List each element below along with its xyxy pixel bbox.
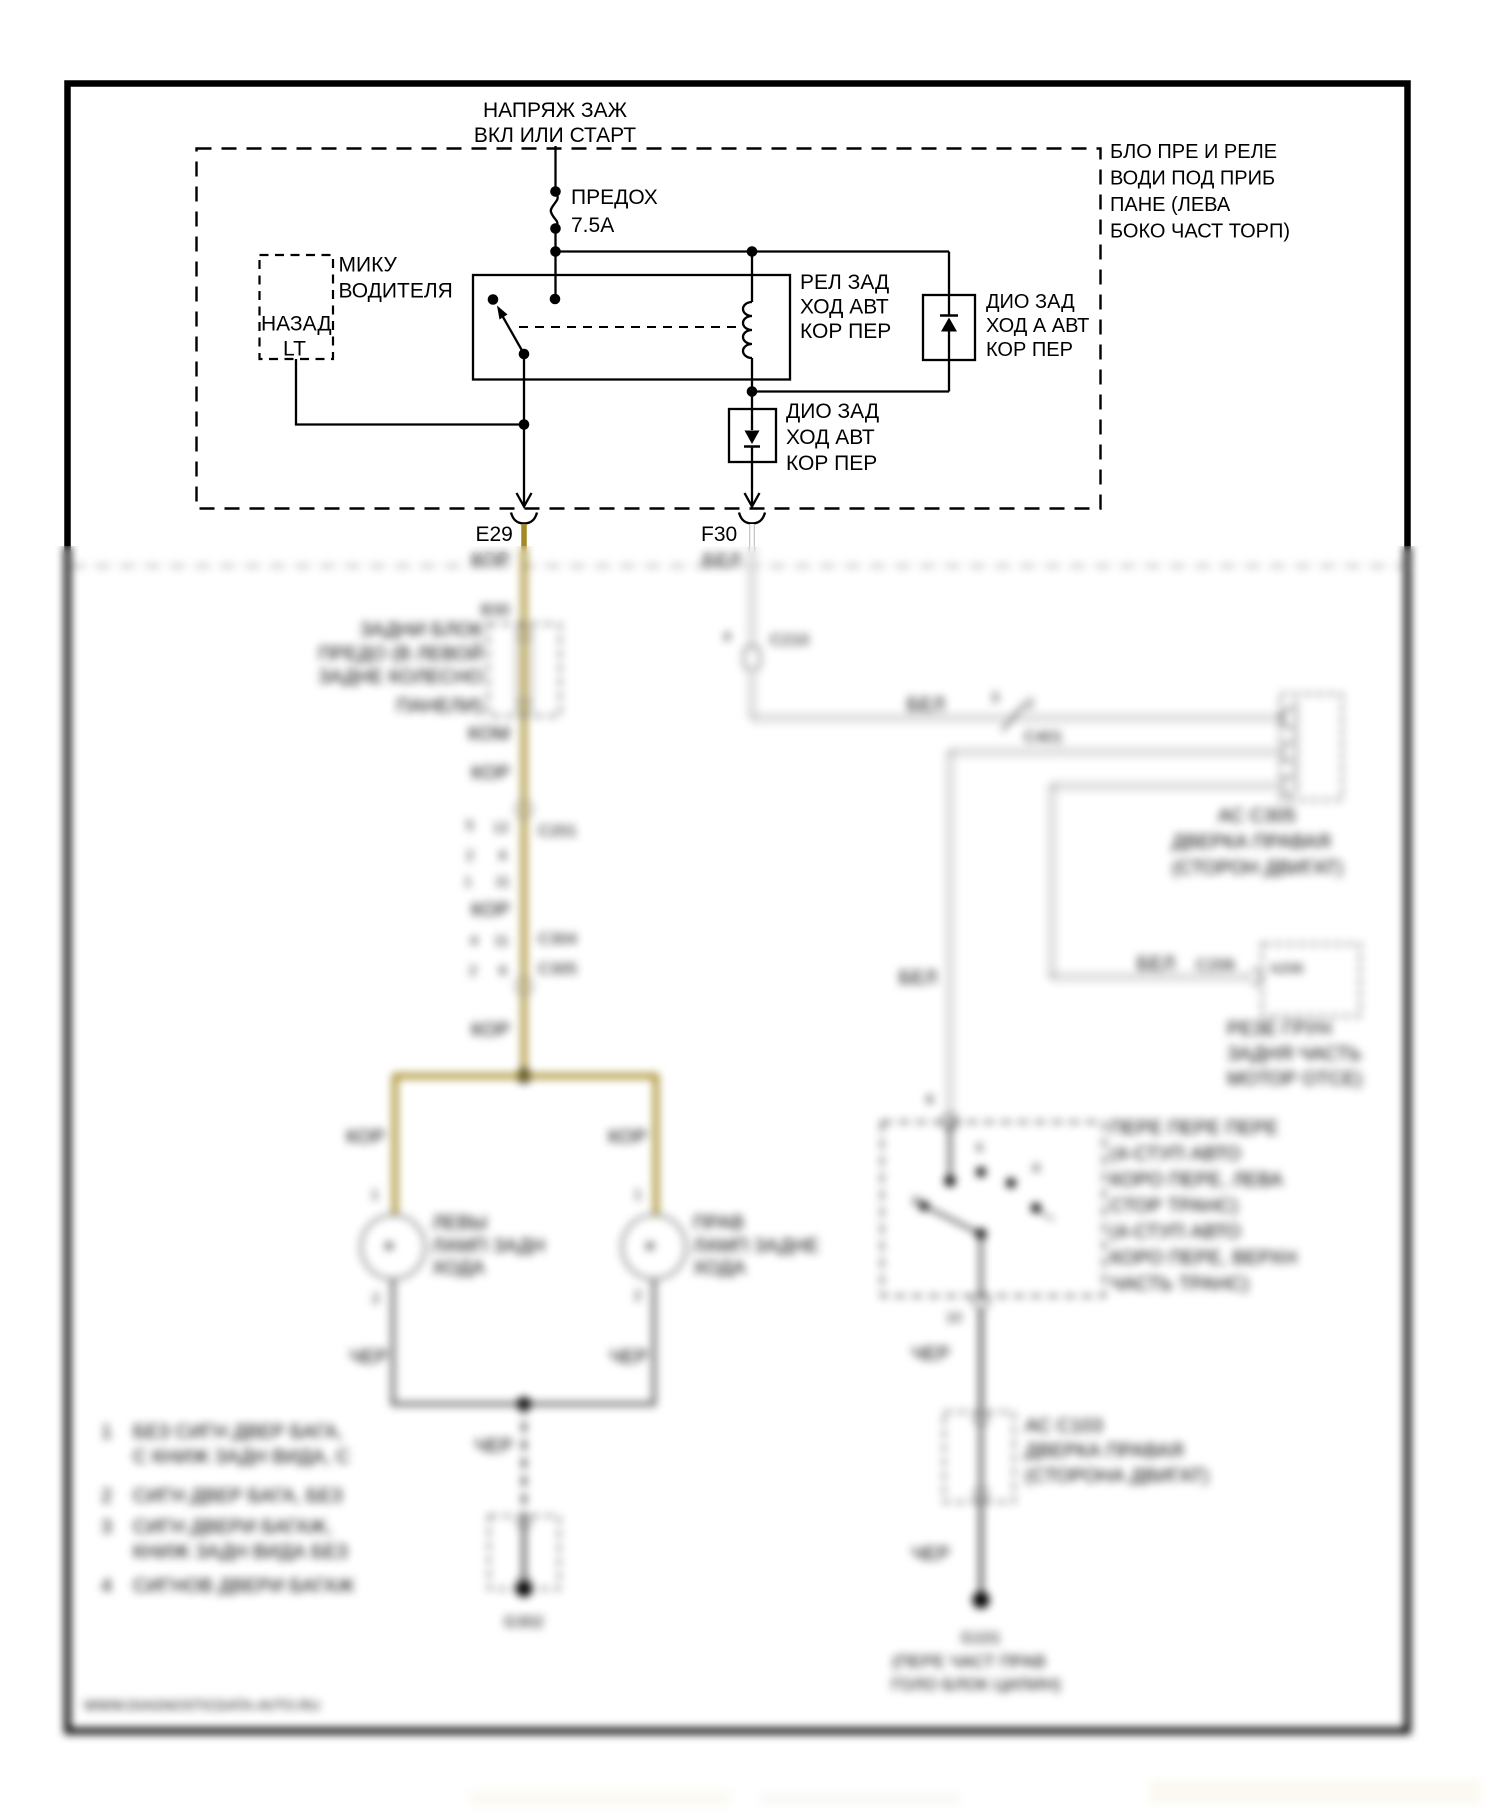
svg-text:ХОД АВТ: ХОД АВТ	[786, 426, 875, 449]
svg-text:WWW.DIAGNOSTICDATA-AVTO.RU: WWW.DIAGNOSTICDATA-AVTO.RU	[84, 1697, 320, 1713]
svg-text:(ПЕРЕ ЧАСТ ПРАВ: (ПЕРЕ ЧАСТ ПРАВ	[892, 1652, 1046, 1671]
svg-text:LT: LT	[283, 338, 306, 361]
svg-text:ПРАВ: ПРАВ	[693, 1213, 744, 1234]
svg-text:ЗАДНЕ КОЛЕСНО: ЗАДНЕ КОЛЕСНО	[318, 667, 483, 688]
svg-text:2: 2	[466, 847, 474, 863]
svg-text:ПАНЕЛИ): ПАНЕЛИ)	[396, 696, 483, 717]
svg-text:С210: С210	[770, 632, 809, 649]
svg-text:КОР: КОР	[346, 1127, 385, 1148]
svg-text:ДИО ЗАД: ДИО ЗАД	[986, 291, 1075, 313]
svg-text:КОР ПЕР: КОР ПЕР	[986, 339, 1073, 361]
svg-text:ПАНЕ (ЛЕВА: ПАНЕ (ЛЕВА	[1110, 194, 1231, 216]
svg-text:1: 1	[464, 873, 472, 889]
svg-text:6: 6	[499, 962, 507, 978]
svg-text:РЕЛ ЗАД: РЕЛ ЗАД	[800, 271, 889, 294]
svg-text:БЕЛ: БЕЛ	[1137, 954, 1175, 975]
svg-text:5: 5	[466, 817, 474, 833]
svg-text:КОР: КОР	[471, 550, 510, 571]
svg-text:БЕЛ: БЕЛ	[899, 968, 937, 989]
svg-text:БЛО ПРЕ И РЕЛЕ: БЛО ПРЕ И РЕЛЕ	[1110, 141, 1277, 163]
svg-text:С КНИЖ ЗАДН ВИДА, С: С КНИЖ ЗАДН ВИДА, С	[133, 1447, 350, 1468]
svg-text:G302: G302	[504, 1614, 544, 1631]
svg-text:11: 11	[495, 873, 510, 889]
svg-text:МИКУ: МИКУ	[339, 254, 398, 277]
svg-text:2: 2	[1026, 695, 1034, 711]
svg-text:F30: F30	[701, 523, 737, 546]
svg-text:ДВЕРКА ПРАВАЯ: ДВЕРКА ПРАВАЯ	[1025, 1441, 1184, 1462]
svg-text:6: 6	[926, 1091, 934, 1107]
svg-text:БЕЛ: БЕЛ	[907, 695, 945, 716]
svg-text:ВКЛ ИЛИ СТАРТ: ВКЛ ИЛИ СТАРТ	[474, 124, 636, 147]
svg-text:ЧЕР: ЧЕР	[911, 1344, 950, 1365]
svg-text:(4-СТУП АВТО: (4-СТУП АВТО	[1110, 1222, 1241, 1243]
svg-text:ВОДИ ПОД ПРИБ: ВОДИ ПОД ПРИБ	[1110, 168, 1275, 190]
svg-text:КНИЖ ЗАДН ВИДА БЕЗ: КНИЖ ЗАДН ВИДА БЕЗ	[133, 1542, 348, 1563]
svg-text:С201: С201	[538, 823, 577, 840]
svg-text:ЧАСТЬ ТРАНС): ЧАСТЬ ТРАНС)	[1110, 1274, 1249, 1295]
svg-text:КОР: КОР	[471, 1020, 510, 1041]
svg-text:РЕЗЕ ГРУН: РЕЗЕ ГРУН	[1227, 1019, 1332, 1040]
svg-text:3: 3	[991, 689, 999, 705]
svg-text:ХОДА: ХОДА	[693, 1258, 746, 1279]
svg-text:ЗАДНИ БЛОК: ЗАДНИ БЛОК	[360, 620, 483, 641]
svg-text:1: 1	[371, 1186, 379, 1202]
svg-text:КОР: КОР	[471, 900, 510, 921]
svg-text:G101: G101	[961, 1630, 1001, 1647]
svg-text:КОР: КОР	[608, 1127, 647, 1148]
svg-text:ЧЕР: ЧЕР	[474, 1436, 513, 1457]
svg-text:ПРЕДО (В ЛЕВОЙ: ПРЕДО (В ЛЕВОЙ	[318, 643, 483, 665]
svg-text:С206: С206	[1196, 957, 1235, 974]
svg-text:КОРО ПЕРЕ, ЛЕВА: КОРО ПЕРЕ, ЛЕВА	[1110, 1170, 1283, 1191]
svg-text:А: А	[1032, 1160, 1041, 1175]
svg-text:4: 4	[470, 932, 478, 948]
svg-text:СИГН ДВЕРИ БАГАЖ,: СИГН ДВЕРИ БАГАЖ,	[133, 1517, 332, 1538]
svg-text:АС С305: АС С305	[1218, 806, 1296, 827]
svg-text:4: 4	[101, 1576, 112, 1597]
svg-text:ПЕРЕ ПЕРЕ ПЕРЕ: ПЕРЕ ПЕРЕ ПЕРЕ	[1110, 1118, 1278, 1139]
svg-text:СТОР ТРАНС): СТОР ТРАНС)	[1110, 1196, 1238, 1217]
svg-text:E29: E29	[476, 523, 513, 546]
svg-text:ЛЕВЫ: ЛЕВЫ	[432, 1213, 487, 1234]
svg-text:С305: С305	[538, 961, 577, 978]
svg-text:НАЗАД: НАЗАД	[261, 313, 332, 336]
svg-text:КОРО ПЕРЕ, ВЕРХН: КОРО ПЕРЕ, ВЕРХН	[1110, 1248, 1297, 1269]
svg-text:С401: С401	[1024, 729, 1063, 746]
svg-text:С304: С304	[538, 931, 577, 948]
svg-text:КОМ: КОМ	[468, 724, 510, 745]
svg-text:ЧЕР: ЧЕР	[609, 1347, 648, 1368]
svg-text:2: 2	[634, 1287, 642, 1303]
svg-text:БЕЛ: БЕЛ	[703, 551, 741, 572]
svg-text:ЗАДНЯ ЧАСТЬ: ЗАДНЯ ЧАСТЬ	[1227, 1044, 1362, 1065]
svg-text:1: 1	[634, 1186, 642, 1202]
svg-text:СИГН ДВЕР БАГА, БЕЗ: СИГН ДВЕР БАГА, БЕЗ	[133, 1486, 343, 1507]
svg-text:ВОДИТЕЛЯ: ВОДИТЕЛЯ	[339, 280, 453, 303]
svg-text:6: 6	[499, 847, 507, 863]
svg-text:ДИО ЗАД: ДИО ЗАД	[786, 400, 879, 423]
svg-text:ХОДА: ХОДА	[432, 1258, 485, 1279]
svg-text:ЛАМП ЗАДН: ЛАМП ЗАДН	[432, 1236, 545, 1257]
svg-text:КОР ПЕР: КОР ПЕР	[800, 320, 891, 343]
svg-text:11: 11	[494, 932, 509, 948]
svg-text:ЧЕР: ЧЕР	[911, 1544, 950, 1565]
svg-text:К: К	[976, 1140, 984, 1155]
svg-text:10: 10	[946, 1309, 962, 1325]
svg-text:(СТОРОНА ДВИГАТ): (СТОРОНА ДВИГАТ)	[1025, 1466, 1209, 1487]
svg-text:(СТОРОН ДВИГАТ): (СТОРОН ДВИГАТ)	[1172, 858, 1343, 879]
svg-text:7.5А: 7.5А	[571, 214, 614, 237]
svg-text:ГОЛО БЛОК ЦИЛИН): ГОЛО БЛОК ЦИЛИН)	[891, 1675, 1061, 1694]
svg-text:БОКО ЧАСТ ТОРП): БОКО ЧАСТ ТОРП)	[1110, 221, 1290, 243]
svg-text:АС С103: АС С103	[1025, 1416, 1103, 1437]
svg-text:БЕЗ СИГН ДВЕР БАГА,: БЕЗ СИГН ДВЕР БАГА,	[133, 1422, 343, 1443]
svg-text:МОТОР ОТСЕ): МОТОР ОТСЕ)	[1227, 1069, 1362, 1090]
svg-text:ХОД АВТ: ХОД АВТ	[800, 296, 889, 319]
svg-text:2: 2	[469, 962, 477, 978]
svg-text:2: 2	[372, 1290, 380, 1306]
svg-text:1: 1	[101, 1422, 112, 1443]
svg-text:КОР ПЕР: КОР ПЕР	[786, 452, 877, 475]
svg-text:ДВЕРКА ПРАВАЯ: ДВЕРКА ПРАВАЯ	[1172, 832, 1331, 853]
svg-text:В30: В30	[481, 602, 510, 619]
svg-text:А206: А206	[1270, 960, 1304, 976]
svg-text:4: 4	[723, 628, 731, 644]
svg-text:КОР: КОР	[471, 763, 510, 784]
svg-text:ЛАМП ЗАДНЕ: ЛАМП ЗАДНЕ	[693, 1236, 819, 1257]
svg-text:СИГНОВ ДВЕРИ БАГАЖ: СИГНОВ ДВЕРИ БАГАЖ	[133, 1576, 355, 1597]
svg-text:ЧЕР: ЧЕР	[349, 1347, 388, 1368]
svg-text:НАПРЯЖ ЗАЖ: НАПРЯЖ ЗАЖ	[483, 99, 628, 122]
svg-text:12: 12	[493, 819, 509, 835]
svg-text:3: 3	[101, 1517, 112, 1538]
svg-text:ПРЕДОХ: ПРЕДОХ	[571, 186, 658, 209]
svg-text:2: 2	[101, 1486, 112, 1507]
svg-text:(4-СТУП АВТО: (4-СТУП АВТО	[1110, 1144, 1241, 1165]
svg-text:ХОД А АВТ: ХОД А АВТ	[986, 315, 1089, 337]
